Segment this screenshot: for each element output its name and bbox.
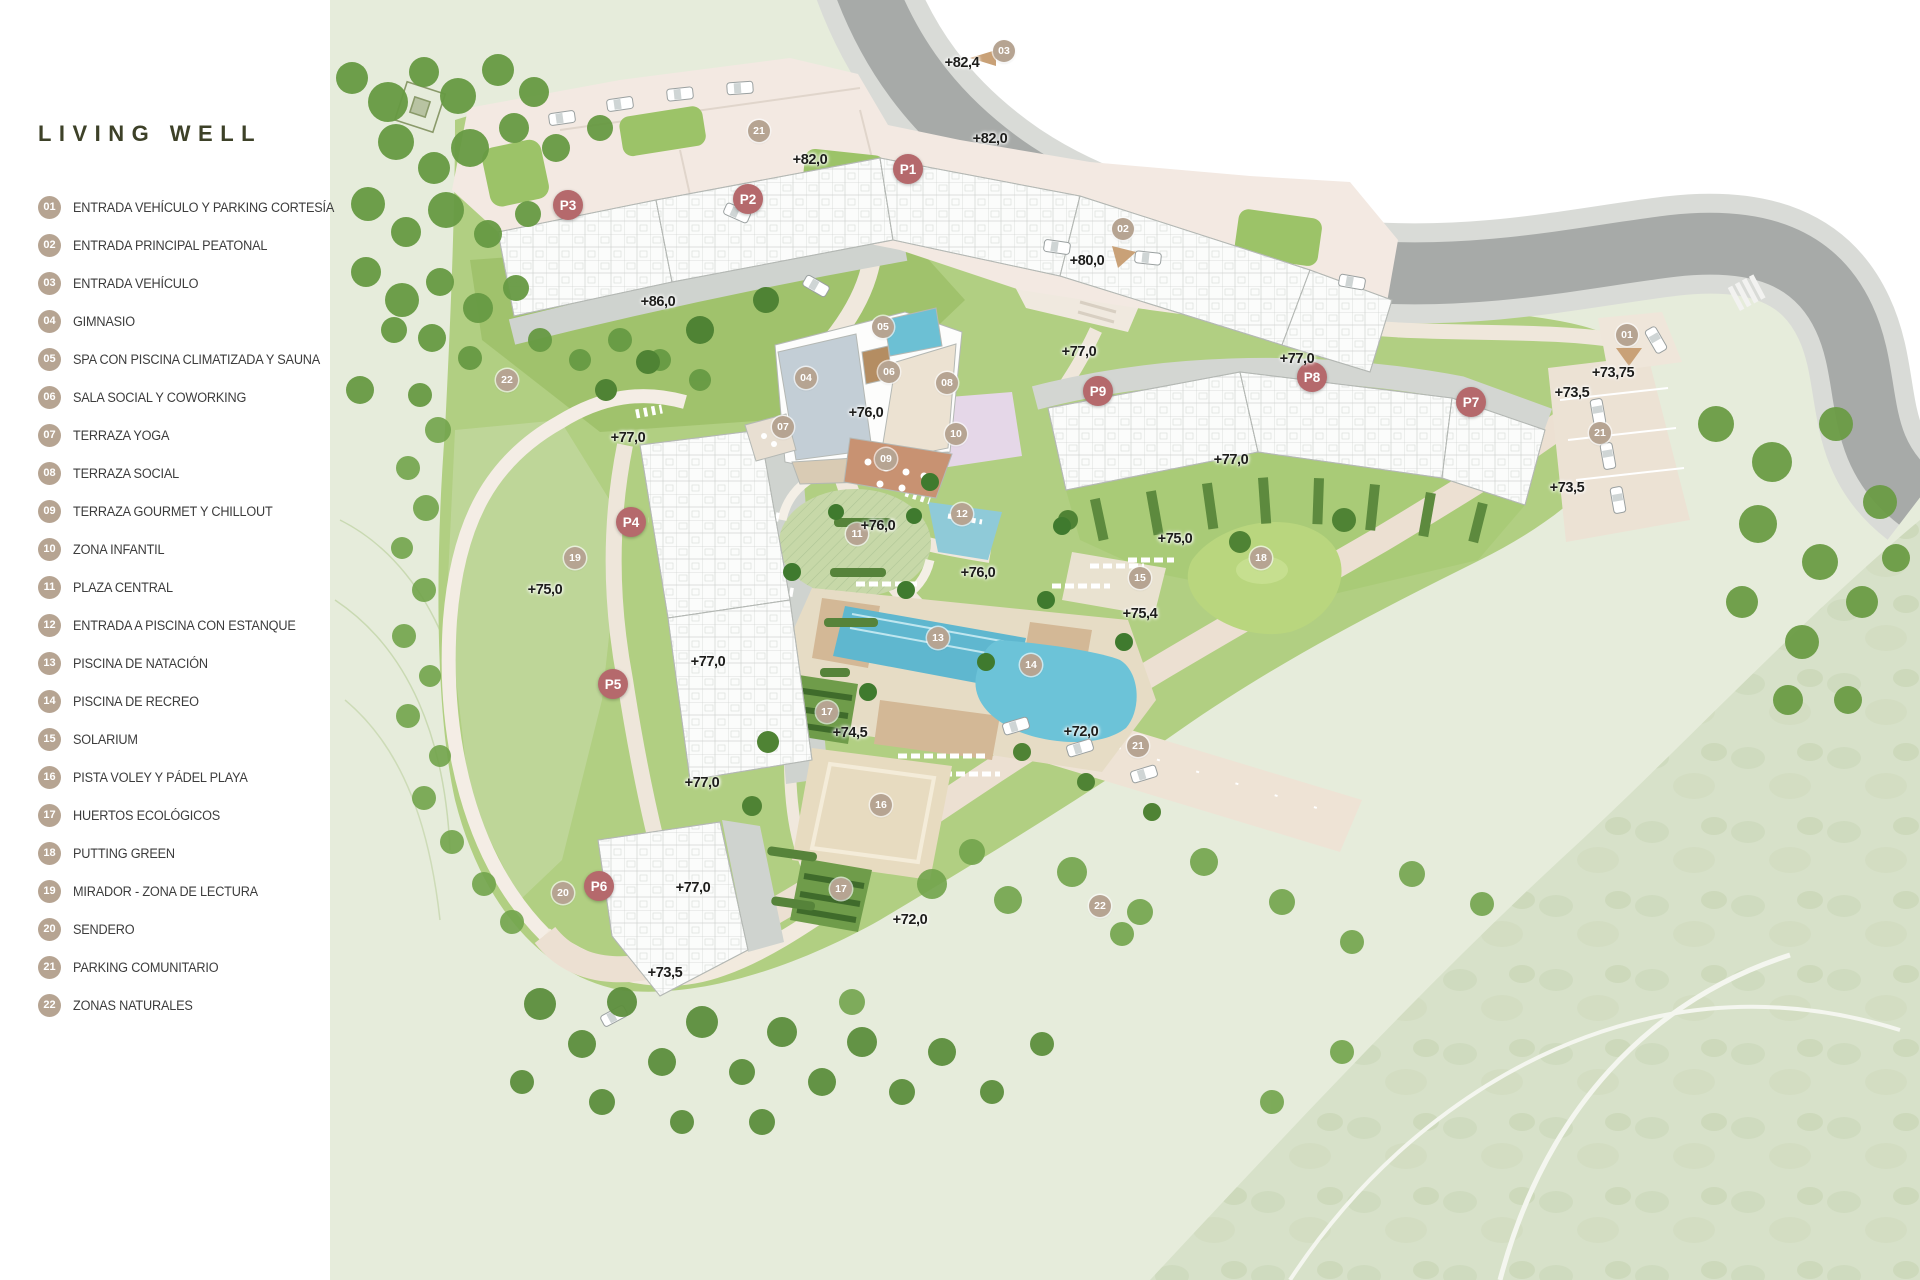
legend-number-badge: 17 bbox=[38, 804, 61, 827]
legend-number-badge: 11 bbox=[38, 576, 61, 599]
legend-item-label: PISTA VOLEY Y PÁDEL PLAYA bbox=[73, 770, 248, 785]
legend-item: 03 ENTRADA VEHÍCULO bbox=[38, 264, 351, 302]
legend-item: 08 TERRAZA SOCIAL bbox=[38, 454, 351, 492]
legend-item-label: TERRAZA GOURMET Y CHILLOUT bbox=[73, 504, 273, 519]
legend-item-label: ZONA INFANTIL bbox=[73, 542, 164, 557]
legend-item: 14 PISCINA DE RECREO bbox=[38, 682, 351, 720]
legend-item-label: GIMNASIO bbox=[73, 314, 135, 329]
legend-item: 09 TERRAZA GOURMET Y CHILLOUT bbox=[38, 492, 351, 530]
legend-item-label: ENTRADA VEHÍCULO bbox=[73, 276, 198, 291]
legend-item: 22 ZONAS NATURALES bbox=[38, 986, 351, 1024]
legend-item-label: SPA CON PISCINA CLIMATIZADA Y SAUNA bbox=[73, 352, 320, 367]
legend-item-label: ENTRADA PRINCIPAL PEATONAL bbox=[73, 238, 267, 253]
legend-item: 01 ENTRADA VEHÍCULO Y PARKING CORTESÍA bbox=[38, 188, 351, 226]
legend-number-badge: 02 bbox=[38, 234, 61, 257]
legend-number-badge: 21 bbox=[38, 956, 61, 979]
legend-number-badge: 04 bbox=[38, 310, 61, 333]
legend-item-label: SOLARIUM bbox=[73, 732, 138, 747]
legend-item: 04 GIMNASIO bbox=[38, 302, 351, 340]
legend-number-badge: 18 bbox=[38, 842, 61, 865]
sauna bbox=[862, 346, 892, 384]
legend-number-badge: 07 bbox=[38, 424, 61, 447]
legend-item-label: ENTRADA VEHÍCULO Y PARKING CORTESÍA bbox=[73, 200, 334, 215]
legend-item: 07 TERRAZA YOGA bbox=[38, 416, 351, 454]
legend-item-label: ZONAS NATURALES bbox=[73, 998, 193, 1013]
legend-item: 15 SOLARIUM bbox=[38, 720, 351, 758]
legend-item: 21 PARKING COMUNITARIO bbox=[38, 948, 351, 986]
legend-item-label: TERRAZA YOGA bbox=[73, 428, 169, 443]
legend-item: 19 MIRADOR - ZONA DE LECTURA bbox=[38, 872, 351, 910]
legend-item-label: PUTTING GREEN bbox=[73, 846, 175, 861]
legend-item-label: HUERTOS ECOLÓGICOS bbox=[73, 808, 220, 823]
legend-number-badge: 22 bbox=[38, 994, 61, 1017]
legend-list: 01 ENTRADA VEHÍCULO Y PARKING CORTESÍA 0… bbox=[38, 188, 351, 1024]
legend-number-badge: 16 bbox=[38, 766, 61, 789]
legend-number-badge: 03 bbox=[38, 272, 61, 295]
legend-item: 17 HUERTOS ECOLÓGICOS bbox=[38, 796, 351, 834]
page-title: LIVING WELL bbox=[38, 121, 262, 147]
legend-number-badge: 05 bbox=[38, 348, 61, 371]
legend-item-label: SALA SOCIAL Y COWORKING bbox=[73, 390, 246, 405]
legend-item: 02 ENTRADA PRINCIPAL PEATONAL bbox=[38, 226, 351, 264]
legend-item: 05 SPA CON PISCINA CLIMATIZADA Y SAUNA bbox=[38, 340, 351, 378]
legend-number-badge: 10 bbox=[38, 538, 61, 561]
legend-item: 10 ZONA INFANTIL bbox=[38, 530, 351, 568]
legend-number-badge: 20 bbox=[38, 918, 61, 941]
legend-number-badge: 15 bbox=[38, 728, 61, 751]
legend-number-badge: 14 bbox=[38, 690, 61, 713]
building-p5 bbox=[668, 600, 812, 780]
legend-item-label: ENTRADA A PISCINA CON ESTANQUE bbox=[73, 618, 296, 633]
legend-number-badge: 13 bbox=[38, 652, 61, 675]
legend-number-badge: 06 bbox=[38, 386, 61, 409]
legend-item: 06 SALA SOCIAL Y COWORKING bbox=[38, 378, 351, 416]
legend-item-label: MIRADOR - ZONA DE LECTURA bbox=[73, 884, 258, 899]
legend-number-badge: 12 bbox=[38, 614, 61, 637]
legend-number-badge: 01 bbox=[38, 196, 61, 219]
legend-panel: LIVING WELL 01 ENTRADA VEHÍCULO Y PARKIN… bbox=[0, 0, 330, 1280]
legend-item-label: PISCINA DE RECREO bbox=[73, 694, 199, 709]
legend-item-label: PISCINA DE NATACIÓN bbox=[73, 656, 208, 671]
legend-item-label: PARKING COMUNITARIO bbox=[73, 960, 218, 975]
legend-number-badge: 08 bbox=[38, 462, 61, 485]
legend-number-badge: 19 bbox=[38, 880, 61, 903]
legend-item: 16 PISTA VOLEY Y PÁDEL PLAYA bbox=[38, 758, 351, 796]
legend-item: 13 PISCINA DE NATACIÓN bbox=[38, 644, 351, 682]
legend-item: 18 PUTTING GREEN bbox=[38, 834, 351, 872]
legend-item: 20 SENDERO bbox=[38, 910, 351, 948]
legend-number-badge: 09 bbox=[38, 500, 61, 523]
legend-item-label: TERRAZA SOCIAL bbox=[73, 466, 179, 481]
legend-item: 12 ENTRADA A PISCINA CON ESTANQUE bbox=[38, 606, 351, 644]
legend-item-label: PLAZA CENTRAL bbox=[73, 580, 173, 595]
legend-item: 11 PLAZA CENTRAL bbox=[38, 568, 351, 606]
legend-item-label: SENDERO bbox=[73, 922, 134, 937]
